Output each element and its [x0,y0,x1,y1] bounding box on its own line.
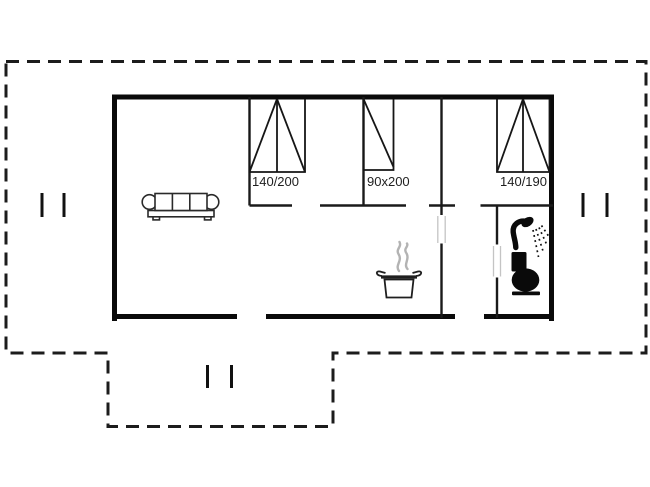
bed-140-200 [250,99,306,172]
door-jambs [438,216,501,277]
steam-icon [398,242,408,271]
bed-label-140-200: 140/200 [252,174,299,189]
sofa-back [148,211,214,217]
floor-plan: 140/200 90x200 140/190 [0,0,650,487]
sofa-icon [142,194,219,220]
bed-140-190 [497,99,550,172]
cooking-pot-icon [377,242,421,298]
shower-icon [513,215,548,257]
sofa-seat [155,194,207,211]
pot-body [385,280,414,298]
shower-spray [533,226,549,258]
toilet-bowl [512,268,540,291]
shower-head [520,215,536,230]
toilet-icon [512,252,541,295]
bed-90x200 [364,99,394,170]
toilet-base [512,292,540,296]
bed-label-90x200: 90x200 [367,174,410,189]
pot-handle-right [413,271,422,276]
pot-handle-left [377,271,386,276]
bed-label-140-190: 140/190 [500,174,547,189]
